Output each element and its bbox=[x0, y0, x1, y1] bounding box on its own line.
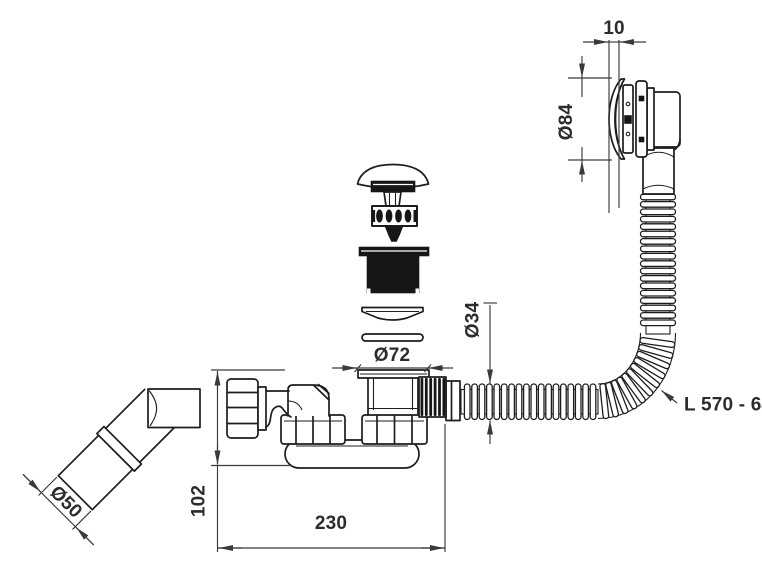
plug-cone-tip bbox=[385, 226, 403, 242]
overflow-plate bbox=[636, 81, 647, 157]
dim-flange-diameter-label: Ø72 bbox=[374, 345, 411, 366]
overflow-cap-assembly bbox=[609, 79, 680, 194]
dim-cap-diameter-label: Ø84 bbox=[556, 104, 577, 141]
plug-stem bbox=[384, 192, 401, 206]
threaded-tailpiece bbox=[359, 247, 429, 294]
hose-cuff bbox=[446, 381, 460, 421]
trap-outlet-nut bbox=[227, 379, 258, 438]
dim-hose-diameter-label: Ø34 bbox=[463, 302, 484, 339]
tailpiece-thread bbox=[367, 256, 419, 293]
plug-seal-band bbox=[371, 181, 415, 192]
dim-outlet-diameter-label: Ø50 bbox=[45, 482, 86, 523]
drain-plug bbox=[358, 165, 429, 242]
trap-inlet-elbow bbox=[288, 385, 329, 416]
outlet-pipe-socket bbox=[148, 389, 200, 428]
hose-bend-ribs bbox=[600, 337, 675, 419]
siphon-trap bbox=[227, 370, 446, 468]
dim-trap-width-label: 230 bbox=[315, 513, 347, 534]
bath-drain-technical-drawing: Ø50 10 Ø84 Ø34 Ø72 L 570 - 640 bbox=[0, 0, 762, 570]
dim-hose-length-label: L 570 - 640 bbox=[684, 395, 762, 416]
trap-outlet-collar bbox=[258, 387, 266, 430]
outlet-pipe: Ø50 bbox=[20, 371, 200, 548]
outlet-pipe-joint bbox=[97, 427, 142, 472]
overflow-plate-rear bbox=[647, 88, 654, 150]
dim-trap-height-label: 102 bbox=[189, 485, 210, 517]
dim-cap-offset-label: 10 bbox=[603, 18, 625, 39]
conical-gasket bbox=[362, 308, 423, 321]
flat-washer bbox=[362, 334, 423, 341]
